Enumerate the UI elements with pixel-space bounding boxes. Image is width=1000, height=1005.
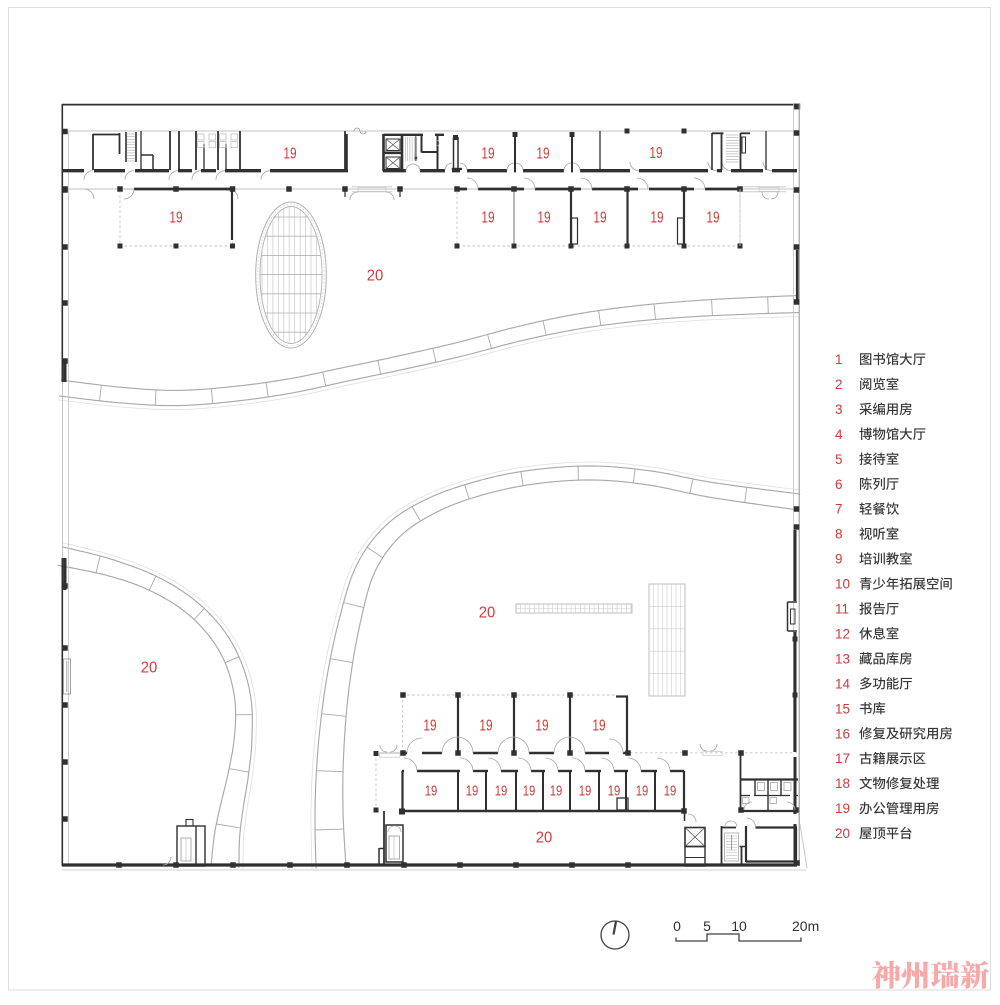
svg-text:6: 6 bbox=[835, 477, 843, 492]
svg-text:19: 19 bbox=[536, 146, 549, 163]
svg-text:0: 0 bbox=[673, 918, 681, 934]
svg-text:20: 20 bbox=[367, 268, 384, 285]
svg-text:17: 17 bbox=[835, 751, 850, 766]
svg-text:19: 19 bbox=[479, 718, 492, 735]
svg-text:20: 20 bbox=[835, 826, 850, 841]
svg-text:19: 19 bbox=[706, 210, 719, 227]
svg-text:1: 1 bbox=[835, 352, 843, 367]
svg-text:19: 19 bbox=[283, 146, 296, 163]
svg-text:19: 19 bbox=[592, 718, 605, 735]
svg-text:18: 18 bbox=[835, 776, 850, 791]
svg-text:10: 10 bbox=[835, 577, 850, 592]
svg-text:20: 20 bbox=[479, 605, 496, 622]
svg-text:14: 14 bbox=[835, 676, 851, 691]
svg-text:2: 2 bbox=[835, 377, 843, 392]
svg-text:19: 19 bbox=[550, 783, 563, 800]
svg-text:15: 15 bbox=[835, 701, 850, 716]
svg-text:10: 10 bbox=[731, 918, 747, 934]
svg-text:19: 19 bbox=[608, 783, 621, 800]
svg-text:19: 19 bbox=[650, 210, 663, 227]
svg-text:13: 13 bbox=[835, 651, 850, 666]
svg-text:19: 19 bbox=[537, 210, 550, 227]
svg-text:19: 19 bbox=[649, 145, 662, 162]
svg-text:19: 19 bbox=[495, 783, 508, 800]
svg-text:3: 3 bbox=[835, 402, 843, 417]
svg-text:19: 19 bbox=[169, 210, 182, 227]
svg-text:19: 19 bbox=[535, 718, 548, 735]
svg-text:20: 20 bbox=[536, 830, 553, 847]
svg-text:19: 19 bbox=[835, 801, 850, 816]
svg-text:19: 19 bbox=[664, 783, 677, 800]
svg-text:20: 20 bbox=[141, 660, 158, 677]
svg-text:19: 19 bbox=[466, 783, 479, 800]
svg-text:19: 19 bbox=[481, 210, 494, 227]
svg-text:19: 19 bbox=[593, 210, 606, 227]
svg-text:8: 8 bbox=[835, 527, 843, 542]
svg-text:4: 4 bbox=[835, 427, 843, 442]
svg-text:19: 19 bbox=[579, 783, 592, 800]
svg-text:5: 5 bbox=[835, 452, 843, 467]
svg-text:16: 16 bbox=[835, 726, 850, 741]
svg-text:12: 12 bbox=[835, 626, 850, 641]
svg-text:11: 11 bbox=[835, 602, 849, 617]
svg-text:20m: 20m bbox=[792, 918, 819, 934]
svg-text:19: 19 bbox=[481, 146, 494, 163]
svg-text:19: 19 bbox=[523, 783, 536, 800]
svg-text:19: 19 bbox=[425, 783, 438, 800]
svg-text:9: 9 bbox=[835, 552, 843, 567]
svg-text:7: 7 bbox=[835, 502, 843, 517]
svg-text:19: 19 bbox=[423, 718, 436, 735]
svg-text:19: 19 bbox=[636, 783, 649, 800]
svg-text:5: 5 bbox=[703, 918, 711, 934]
